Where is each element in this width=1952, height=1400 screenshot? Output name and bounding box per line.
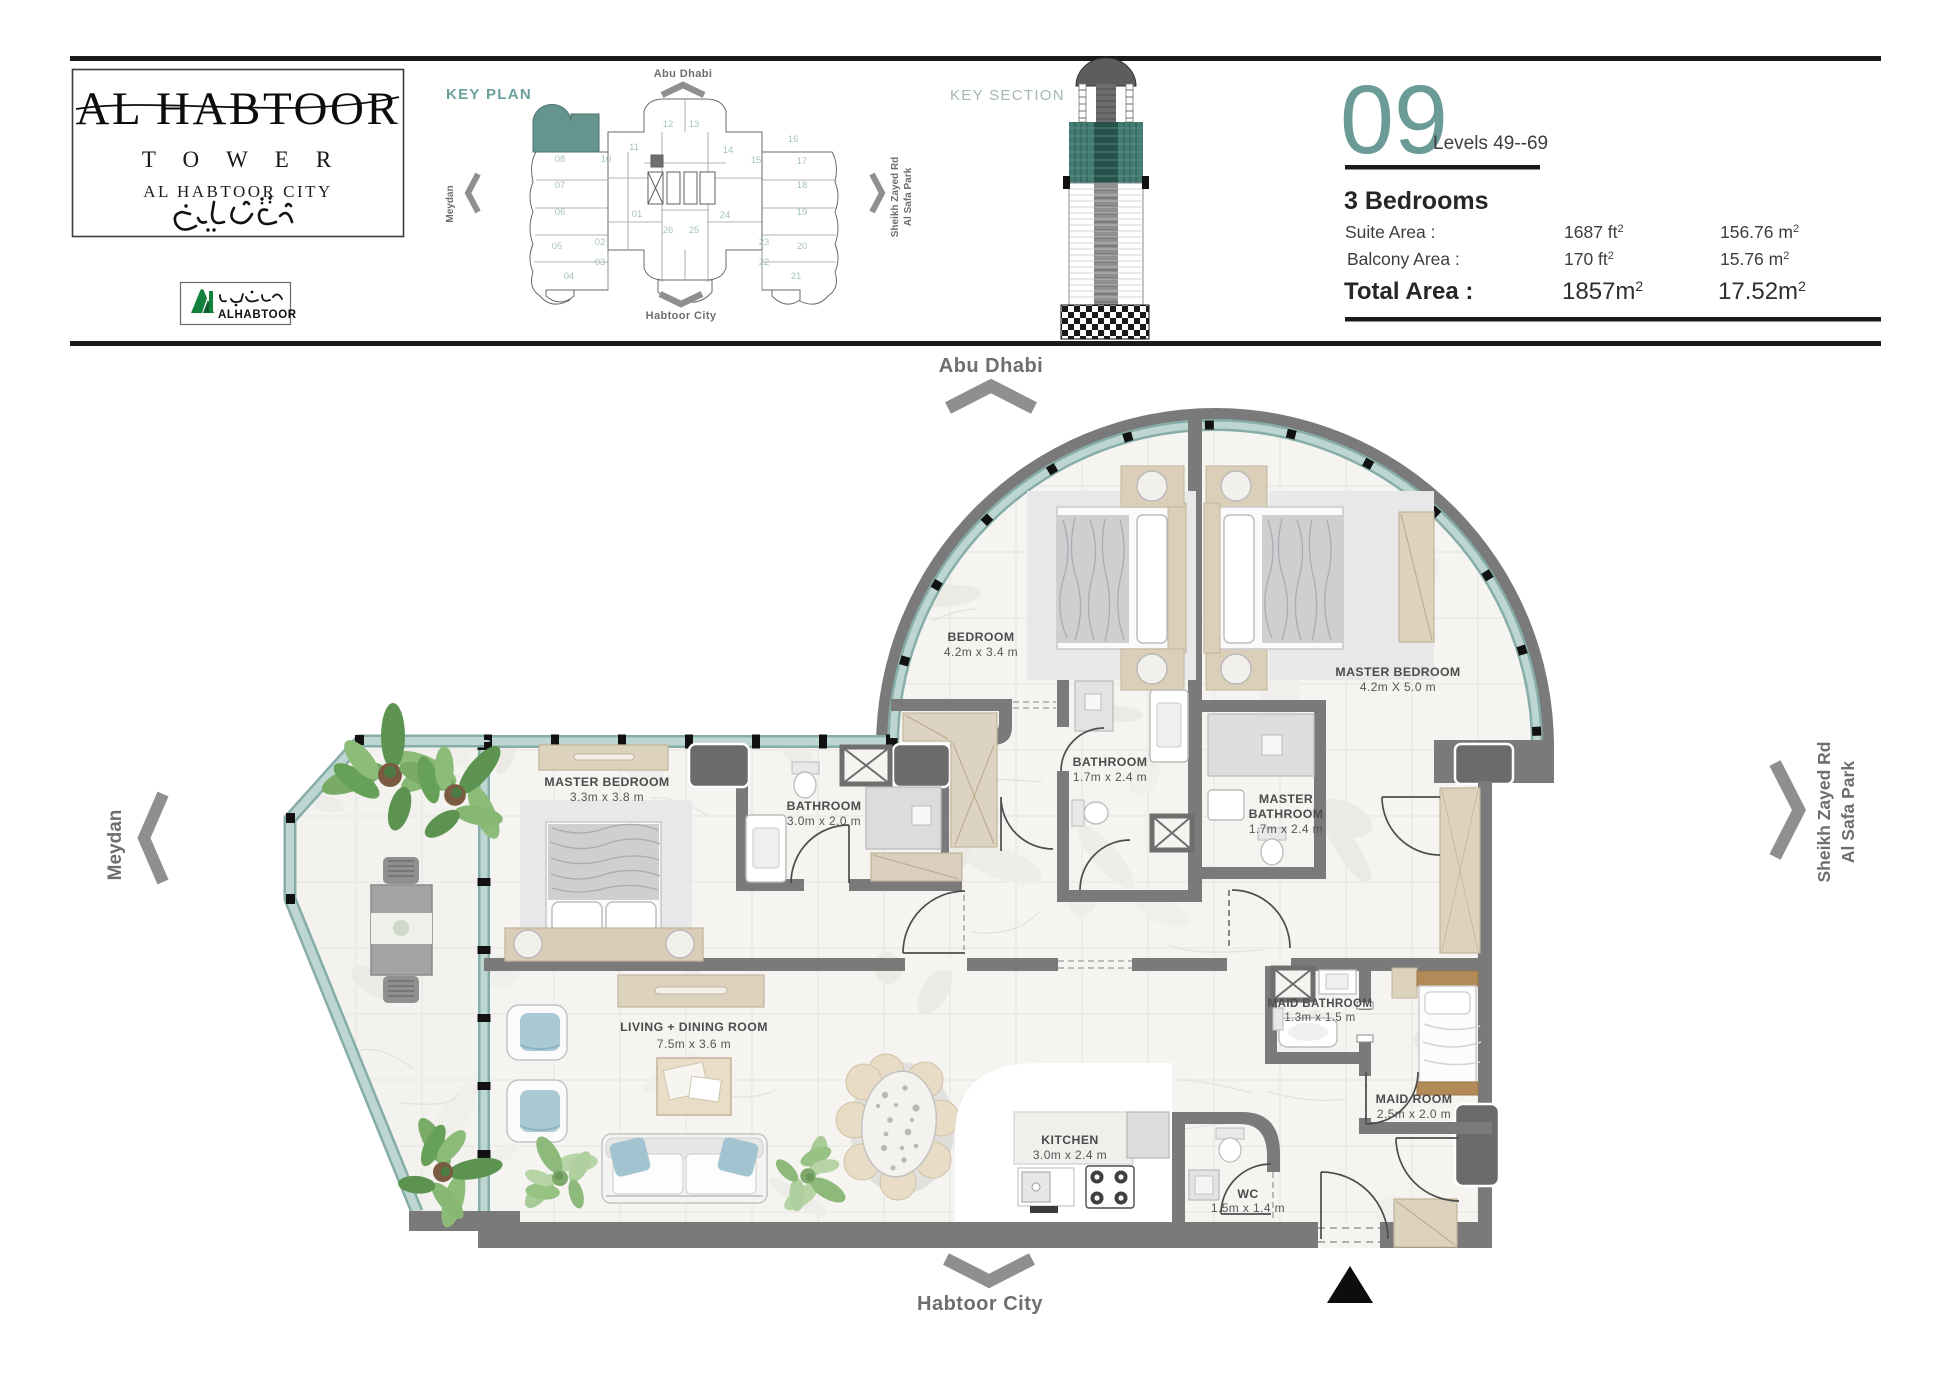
- svg-text:KITCHEN: KITCHEN: [1041, 1133, 1098, 1147]
- svg-text:09: 09: [1340, 65, 1448, 174]
- svg-text:16: 16: [788, 134, 799, 145]
- svg-text:1.3m x 1.5 m: 1.3m x 1.5 m: [1284, 1012, 1355, 1024]
- svg-text:Meydan: Meydan: [105, 810, 126, 881]
- svg-text:11: 11: [629, 142, 639, 153]
- svg-text:BEDROOM: BEDROOM: [947, 630, 1014, 644]
- svg-text:05: 05: [552, 241, 563, 252]
- svg-text:3.0m x 2.0 m: 3.0m x 2.0 m: [787, 814, 861, 828]
- svg-text:Suite Area :: Suite Area :: [1345, 222, 1435, 242]
- svg-text:02: 02: [595, 237, 606, 248]
- svg-text:1.7m x 2.4 m: 1.7m x 2.4 m: [1249, 822, 1323, 836]
- svg-text:1.7m x 2.4 m: 1.7m x 2.4 m: [1073, 770, 1147, 784]
- svg-text:4.2m x 3.4 m: 4.2m x 3.4 m: [944, 645, 1018, 659]
- svg-text:WC: WC: [1237, 1187, 1258, 1201]
- svg-text:Sheikh Zayed Rd: Sheikh Zayed Rd: [1814, 741, 1834, 882]
- svg-text:156.76 m2: 156.76 m2: [1720, 222, 1799, 242]
- svg-text:1857m2: 1857m2: [1562, 278, 1643, 305]
- svg-text:Al Safa Park: Al Safa Park: [1838, 761, 1858, 863]
- svg-text:Habtoor City: Habtoor City: [917, 1293, 1043, 1315]
- svg-text:23: 23: [759, 237, 770, 248]
- svg-text:12: 12: [663, 119, 674, 130]
- svg-text:MAID ROOM: MAID ROOM: [1376, 1092, 1453, 1106]
- svg-text:KEY SECTION: KEY SECTION: [950, 87, 1065, 104]
- svg-text:18: 18: [797, 180, 808, 191]
- svg-text:10: 10: [601, 154, 612, 165]
- svg-text:AL HABTOOR CITY: AL HABTOOR CITY: [143, 182, 333, 201]
- svg-text:21: 21: [791, 271, 802, 282]
- svg-text:MASTER: MASTER: [1259, 792, 1313, 806]
- svg-text:Abu Dhabi: Abu Dhabi: [939, 355, 1044, 377]
- svg-text:MAID BATHROOM: MAID BATHROOM: [1268, 998, 1373, 1010]
- svg-text:LIVING + DINING ROOM: LIVING + DINING ROOM: [620, 1020, 768, 1034]
- svg-text:ALHABTOOR: ALHABTOOR: [218, 309, 297, 321]
- svg-text:07: 07: [555, 180, 566, 191]
- svg-text:MASTER BEDROOM: MASTER BEDROOM: [544, 775, 669, 789]
- svg-text:MASTER BEDROOM: MASTER BEDROOM: [1335, 665, 1460, 679]
- svg-text:17.52m2: 17.52m2: [1718, 278, 1806, 305]
- svg-text:3.3m x 3.8 m: 3.3m x 3.8 m: [570, 790, 644, 804]
- svg-text:15.76 m2: 15.76 m2: [1720, 249, 1789, 269]
- svg-text:26: 26: [663, 225, 674, 236]
- svg-text:BATHROOM: BATHROOM: [787, 799, 862, 813]
- svg-text:1.5m x 1.4 m: 1.5m x 1.4 m: [1211, 1201, 1285, 1215]
- svg-text:06: 06: [555, 207, 566, 218]
- svg-text:04: 04: [564, 271, 575, 282]
- svg-text:Abu Dhabi: Abu Dhabi: [654, 68, 713, 80]
- svg-text:01: 01: [632, 209, 643, 220]
- svg-text:3 Bedrooms: 3 Bedrooms: [1344, 187, 1488, 215]
- svg-text:24: 24: [720, 210, 731, 221]
- svg-text:Meydan: Meydan: [445, 185, 456, 222]
- svg-text:2.5m x 2.0 m: 2.5m x 2.0 m: [1377, 1107, 1451, 1121]
- svg-text:17: 17: [797, 156, 808, 167]
- svg-text:Total Area :: Total Area :: [1344, 278, 1473, 305]
- svg-text:BATHROOM: BATHROOM: [1249, 807, 1324, 821]
- svg-text:7.5m x 3.6 m: 7.5m x 3.6 m: [657, 1037, 731, 1051]
- svg-text:13: 13: [689, 119, 700, 130]
- svg-text:AL HABTOOR: AL HABTOOR: [76, 83, 401, 135]
- svg-text:1687 ft2: 1687 ft2: [1564, 222, 1624, 242]
- svg-text:25: 25: [689, 225, 700, 236]
- svg-text:KEY PLAN: KEY PLAN: [446, 86, 532, 103]
- svg-text:3.0m x 2.4 m: 3.0m x 2.4 m: [1033, 1148, 1107, 1162]
- svg-text:Al Safa Park: Al Safa Park: [903, 167, 914, 226]
- svg-text:Balcony Area :: Balcony Area :: [1347, 249, 1460, 269]
- svg-text:4.2m X 5.0 m: 4.2m X 5.0 m: [1360, 680, 1436, 694]
- svg-text:20: 20: [797, 241, 808, 252]
- svg-text:Levels 49--69: Levels 49--69: [1433, 133, 1548, 154]
- svg-text:170 ft2: 170 ft2: [1564, 249, 1614, 269]
- svg-text:14: 14: [723, 145, 734, 156]
- svg-text:08: 08: [555, 154, 566, 165]
- svg-text:BATHROOM: BATHROOM: [1073, 755, 1148, 769]
- svg-text:Sheikh Zayed Rd: Sheikh Zayed Rd: [890, 157, 901, 238]
- svg-text:Habtoor City: Habtoor City: [646, 310, 717, 322]
- svg-text:22: 22: [759, 257, 770, 268]
- svg-text:19: 19: [797, 207, 808, 218]
- svg-text:TOWER: TOWER: [142, 147, 358, 172]
- svg-text:03: 03: [595, 257, 606, 268]
- svg-text:15: 15: [751, 155, 762, 166]
